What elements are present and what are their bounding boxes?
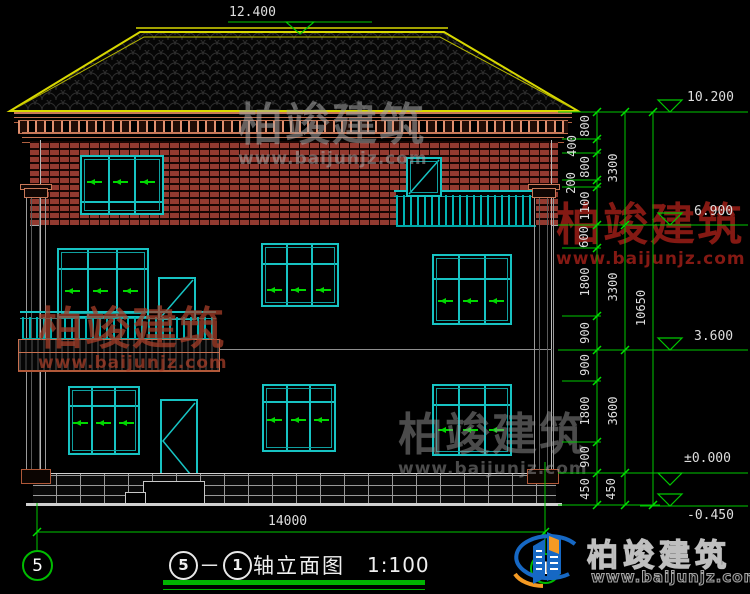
dim-label-total-height: 10650	[634, 290, 648, 326]
dim-label: 1800	[578, 397, 592, 426]
logo-url: www.baijunjz.com	[591, 568, 750, 586]
title-underline-thick	[163, 580, 425, 585]
company-logo: 柏竣建筑 www.baijunjz.com	[505, 524, 750, 594]
dim-label: 900	[578, 354, 592, 376]
logo-building-icon	[505, 524, 583, 590]
title-axis-start: 5	[169, 551, 198, 580]
title-axis-end: 1	[223, 551, 252, 580]
dim-label: 900	[578, 322, 592, 344]
title-scale: 1:100	[367, 553, 430, 577]
dim-label: 400	[565, 135, 579, 157]
level-label-floor3: 6.900	[694, 204, 733, 219]
axis-bubble-5: 5	[22, 550, 53, 581]
dim-label: 1100	[578, 192, 592, 221]
dim-label: 800	[578, 115, 592, 137]
title-dash: －	[199, 550, 222, 580]
axis-number: 5	[32, 556, 43, 576]
dim-label: 3300	[606, 273, 620, 302]
dim-label-total-width: 14000	[268, 514, 307, 529]
dim-label: 3600	[606, 397, 620, 426]
dim-label: 900	[578, 446, 592, 468]
dim-label: 800	[578, 156, 592, 178]
dim-label: 450	[604, 478, 618, 500]
dim-label: 200	[564, 172, 578, 194]
drawing-title: 5 － 1 轴立面图 1:100	[168, 550, 430, 580]
dim-label: 1800	[578, 268, 592, 297]
level-label-eaves: 10.200	[687, 90, 734, 105]
dim-label: 3300	[606, 154, 620, 183]
dim-label: 450	[578, 478, 592, 500]
level-label-ridge: 12.400	[229, 5, 276, 20]
elevation-drawing: 柏竣建筑 www.baijunjz.com 柏竣建筑 www.baijunjz.…	[0, 0, 750, 594]
level-label-floor2: 3.600	[694, 329, 733, 344]
level-label-zero: ±0.000	[684, 451, 731, 466]
title-name: 轴立面图	[253, 550, 345, 580]
level-label-ground: -0.450	[687, 508, 734, 523]
title-underline-thin	[163, 589, 425, 590]
dim-label: 600	[577, 226, 591, 248]
